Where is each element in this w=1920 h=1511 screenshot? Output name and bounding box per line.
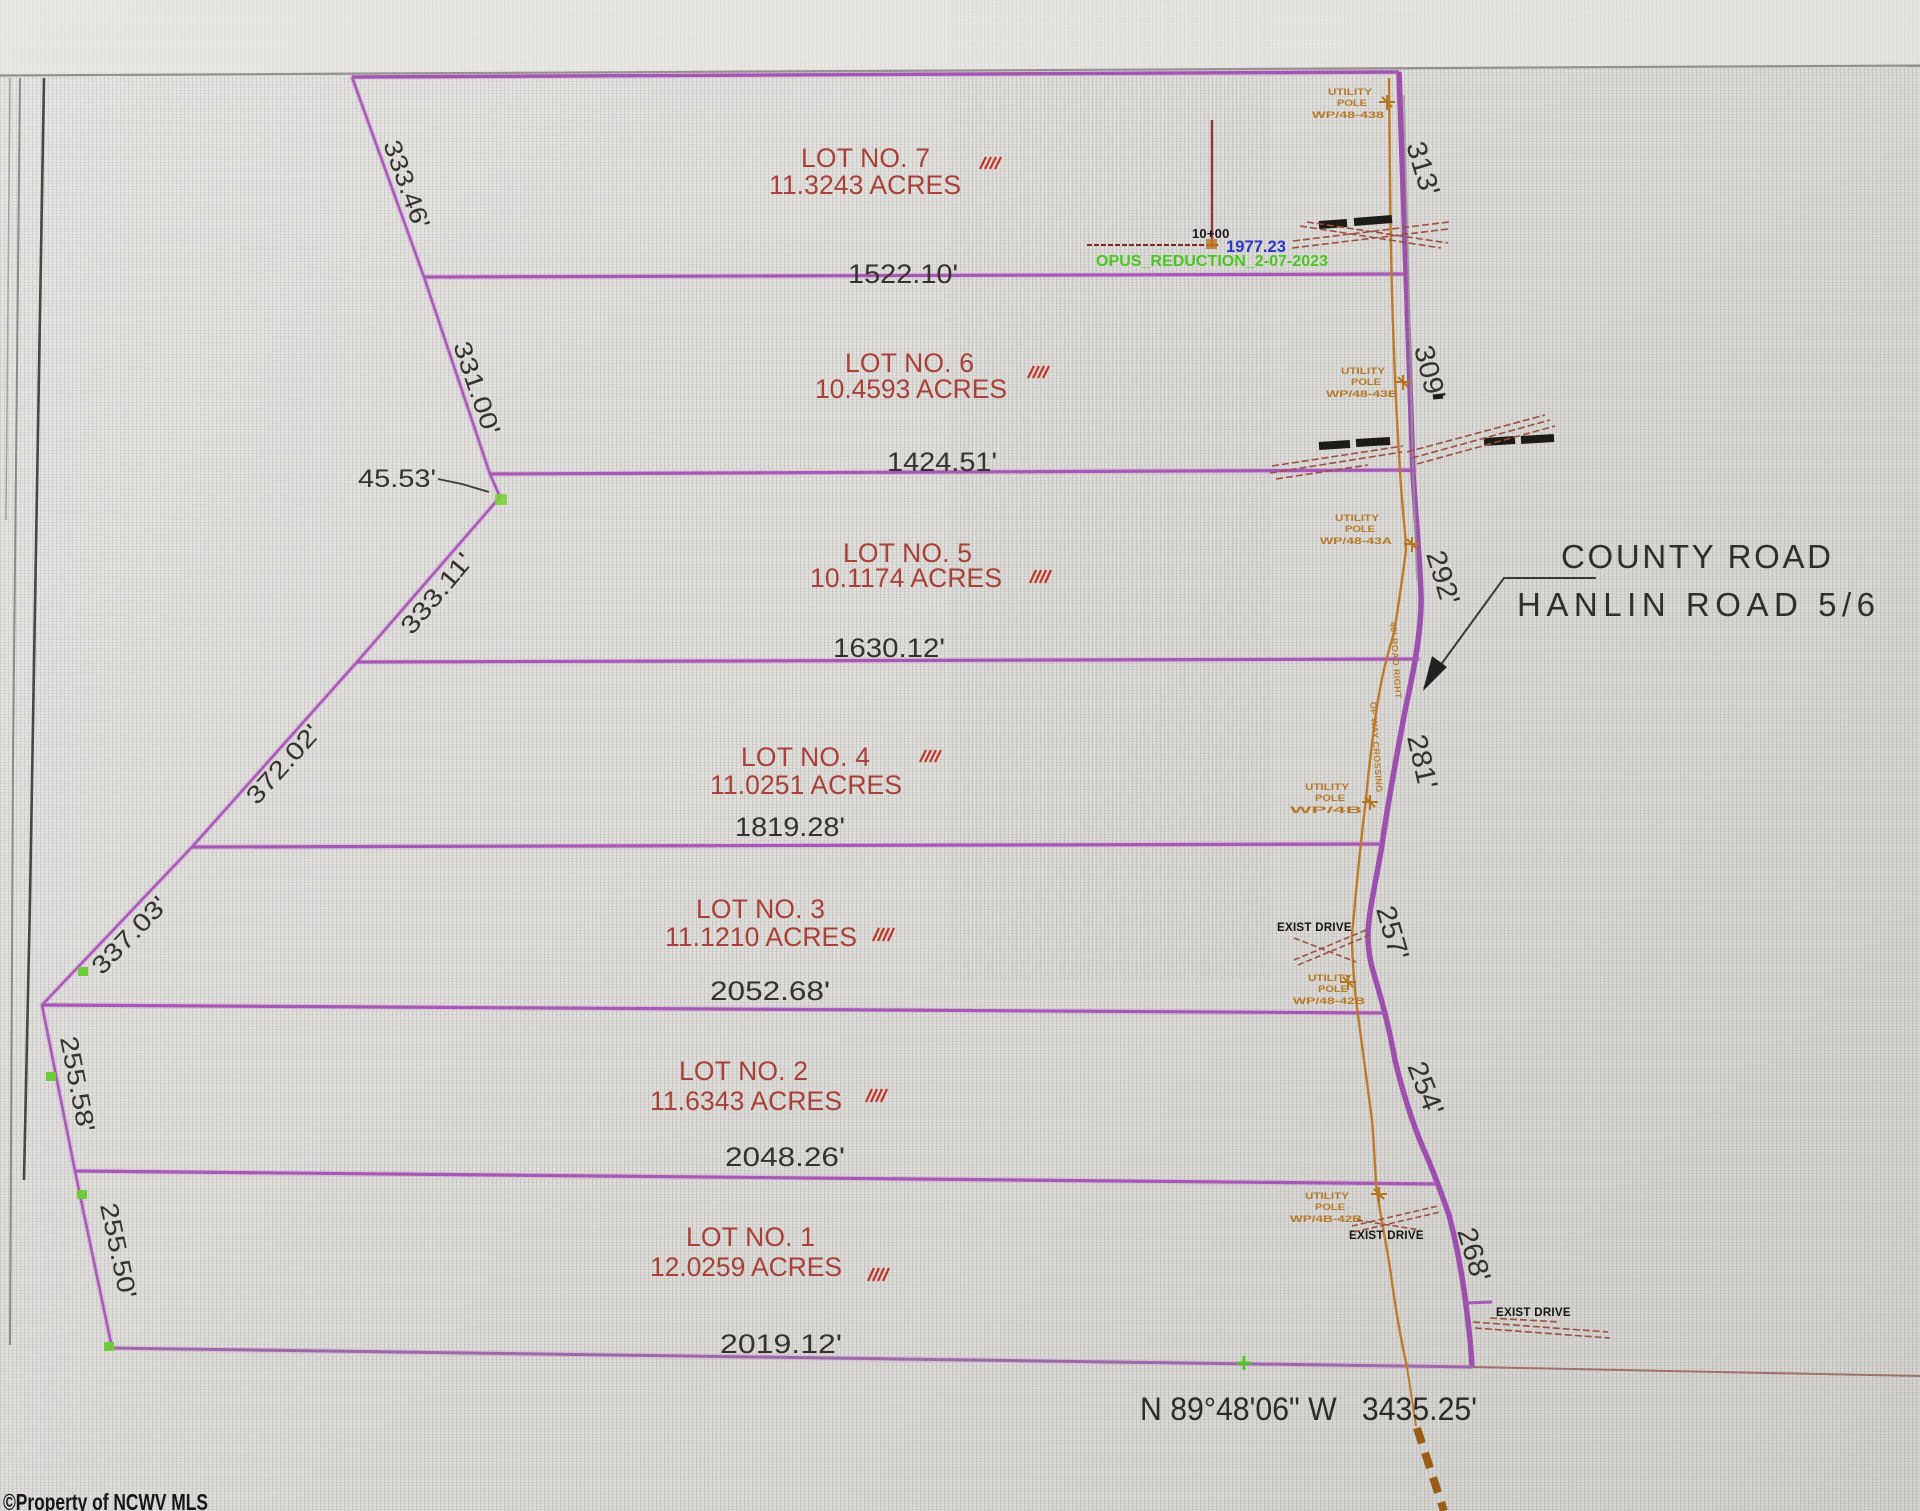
svg-text:COUNTY ROAD: COUNTY ROAD	[1561, 538, 1831, 575]
svg-text:UTILITY: UTILITY	[1328, 87, 1373, 98]
svg-text:WP/4B-42B: WP/4B-42B	[1290, 1214, 1362, 1225]
svg-text:WP/48-42B: WP/48-42B	[1293, 996, 1365, 1007]
svg-text:1819.28': 1819.28'	[735, 812, 845, 842]
svg-text:11.1210 ACRES: 11.1210 ACRES	[665, 922, 857, 952]
svg-text:POLE: POLE	[1318, 984, 1348, 995]
svg-text:WP/48-43A: WP/48-43A	[1320, 536, 1392, 547]
svg-text:POLE: POLE	[1351, 377, 1381, 388]
svg-text:2019.12': 2019.12'	[720, 1329, 842, 1359]
svg-text:LOT NO. 4: LOT NO. 4	[741, 742, 870, 772]
svg-text:10.4593 ACRES: 10.4593 ACRES	[815, 374, 1007, 404]
svg-text:10.1174 ACRES: 10.1174 ACRES	[810, 563, 1002, 593]
svg-text:UTILITY: UTILITY	[1341, 366, 1386, 377]
svg-text:LOT NO. 3: LOT NO. 3	[696, 894, 825, 924]
svg-text:1424.51': 1424.51'	[887, 447, 997, 477]
svg-text:UTILITY: UTILITY	[1335, 513, 1380, 524]
svg-text:11.0251 ACRES: 11.0251 ACRES	[710, 770, 902, 800]
svg-text:11.3243 ACRES: 11.3243 ACRES	[769, 170, 961, 200]
svg-text:45.53': 45.53'	[358, 465, 436, 493]
svg-text:1522.10': 1522.10'	[848, 259, 958, 289]
svg-text:WP/48-438: WP/48-438	[1312, 110, 1384, 121]
svg-text:N 89°48'06" W 3435.25': N 89°48'06" W 3435.25'	[1140, 1391, 1477, 1427]
svg-text:12.0259 ACRES: 12.0259 ACRES	[650, 1252, 842, 1282]
svg-text:WP/48-43B: WP/48-43B	[1326, 389, 1398, 400]
svg-text:2052.68': 2052.68'	[710, 976, 830, 1006]
svg-text:LOT NO. 7: LOT NO. 7	[801, 143, 930, 173]
svg-text:EXIST DRIVE: EXIST DRIVE	[1349, 1230, 1424, 1242]
svg-text:POLE: POLE	[1315, 1202, 1345, 1213]
svg-text:10+00: 10+00	[1192, 226, 1230, 241]
svg-text:POLE: POLE	[1345, 524, 1375, 535]
svg-text:11.6343 ACRES: 11.6343 ACRES	[650, 1086, 842, 1116]
svg-text:POLE: POLE	[1337, 98, 1367, 109]
svg-text:OPUS_REDUCTION_2-07-2023: OPUS_REDUCTION_2-07-2023	[1096, 253, 1328, 270]
svg-text:POLE: POLE	[1315, 793, 1345, 804]
svg-text:2048.26': 2048.26'	[725, 1142, 845, 1172]
svg-text:©Property of NCWV MLS: ©Property of NCWV MLS	[3, 1489, 208, 1511]
svg-text:EXIST DRIVE: EXIST DRIVE	[1277, 922, 1352, 934]
svg-text:UTILITY: UTILITY	[1305, 1191, 1350, 1202]
svg-text:LOT NO. 1: LOT NO. 1	[686, 1222, 815, 1252]
svg-text:1630.12': 1630.12'	[833, 633, 945, 663]
svg-text:LOT NO. 2: LOT NO. 2	[679, 1056, 808, 1086]
svg-text:WP/4B: WP/4B	[1290, 805, 1362, 816]
svg-text:EXIST DRIVE: EXIST DRIVE	[1496, 1307, 1571, 1319]
svg-text:UTILITY: UTILITY	[1305, 782, 1350, 793]
